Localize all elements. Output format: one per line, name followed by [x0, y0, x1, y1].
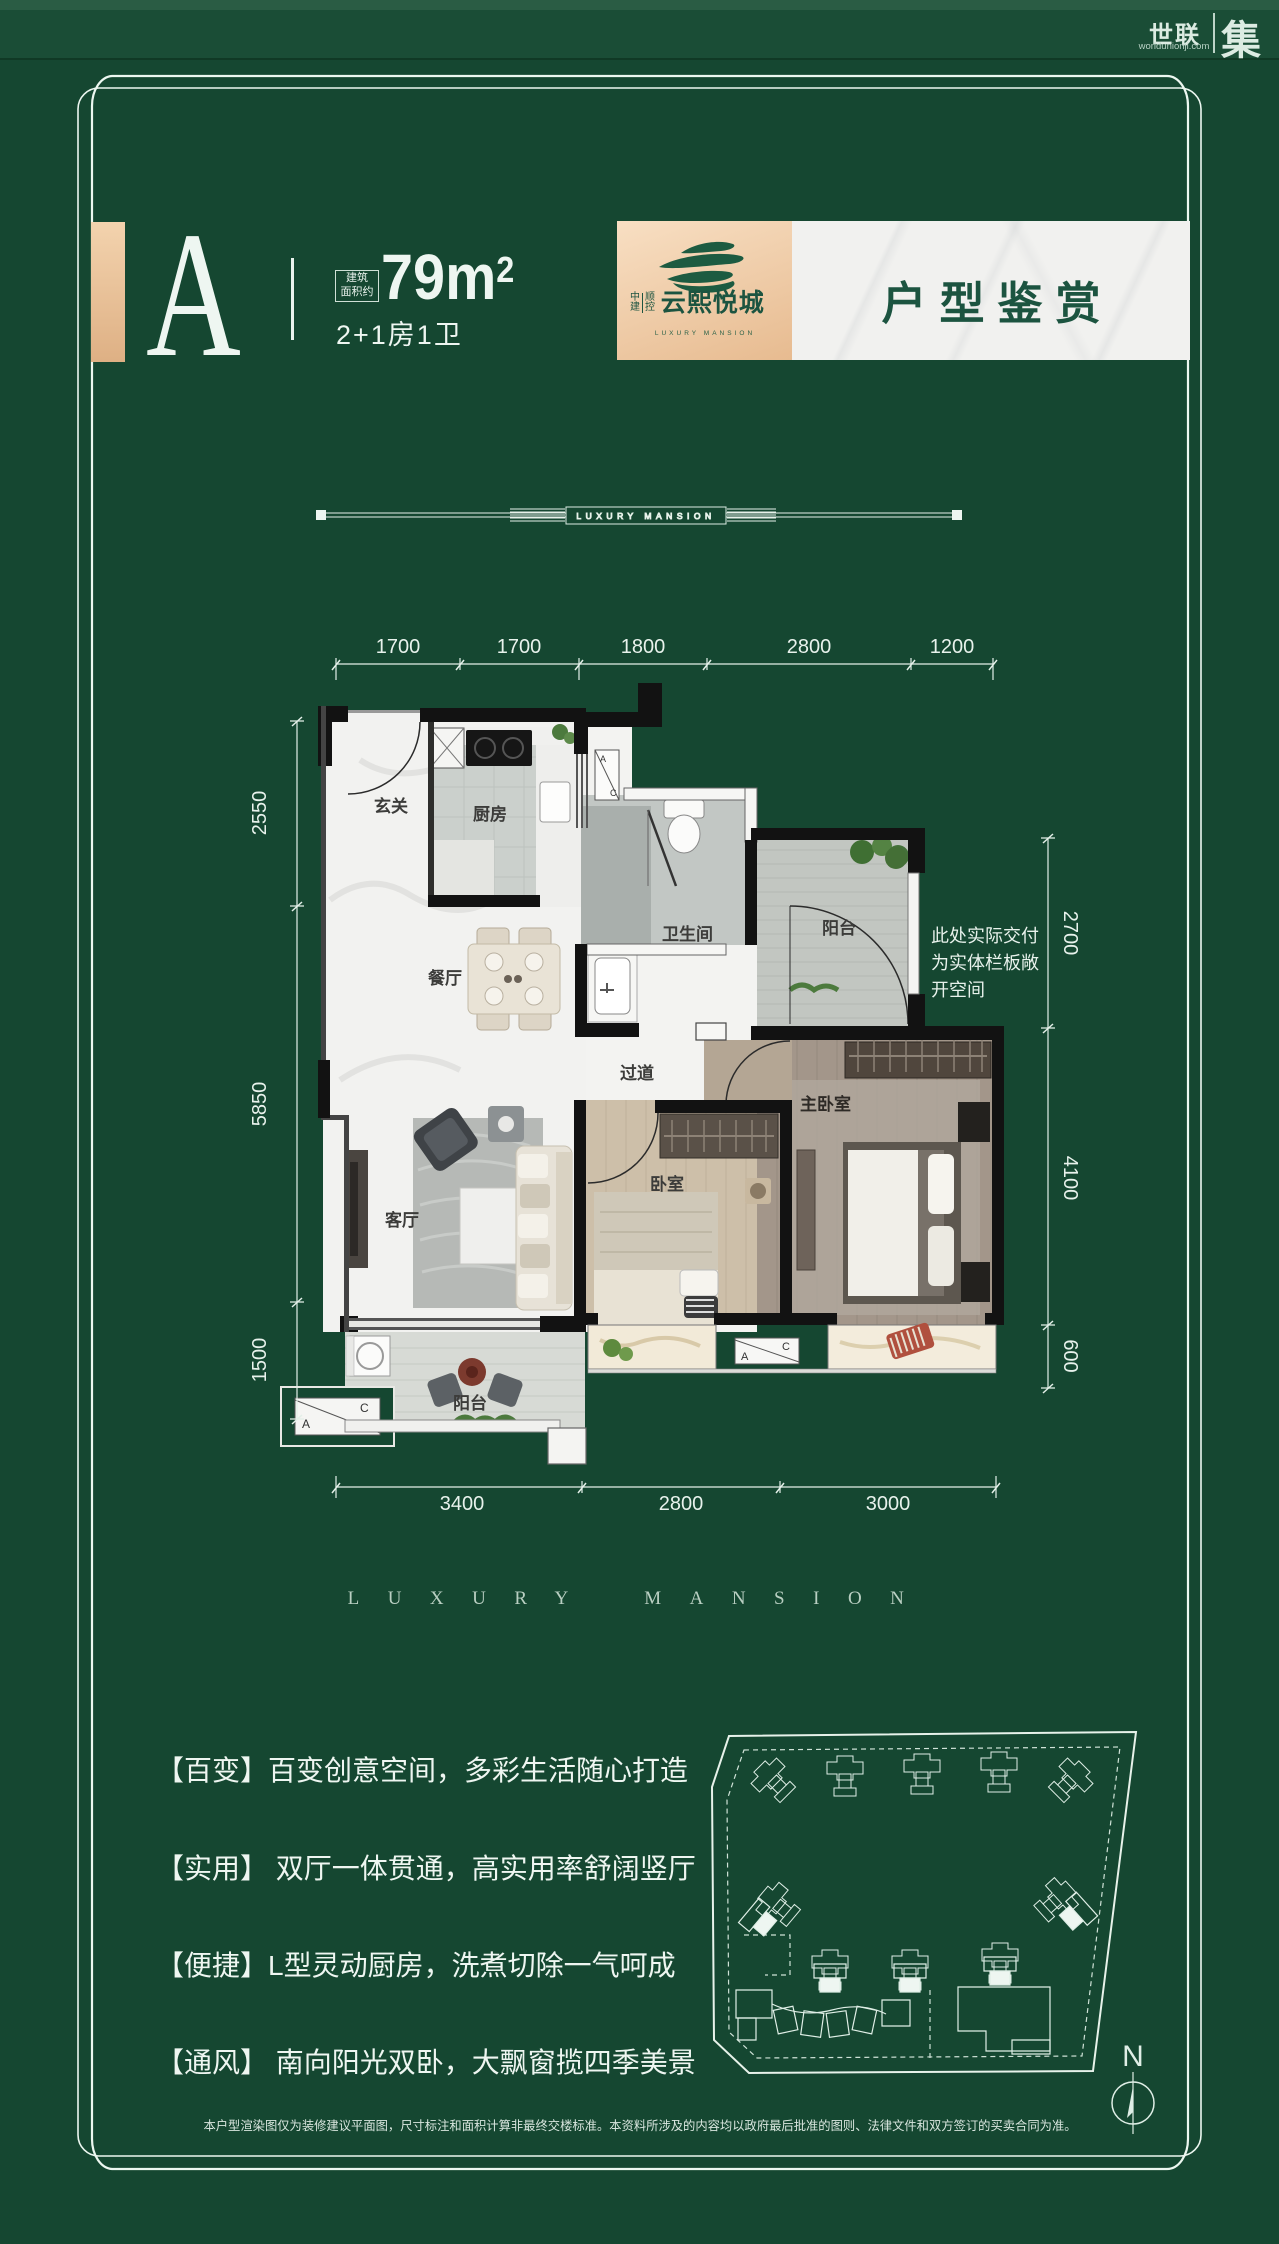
svg-text:3000: 3000 [866, 1493, 911, 1515]
svg-text:A: A [741, 1351, 749, 1363]
svg-text:玄关: 玄关 [374, 796, 408, 816]
svg-text:1500: 1500 [249, 1338, 271, 1383]
svg-text:开空间: 开空间 [931, 980, 985, 1000]
svg-text:C: C [610, 788, 617, 798]
svg-text:1700: 1700 [497, 636, 542, 658]
svg-text:1200: 1200 [930, 636, 975, 658]
svg-text:A: A [600, 754, 606, 764]
svg-text:LUXURY MANSION: LUXURY MANSION [576, 511, 715, 521]
svg-text:4100: 4100 [1059, 1156, 1081, 1201]
svg-text:客厅: 客厅 [384, 1210, 419, 1230]
svg-text:为实体栏板敞: 为实体栏板敞 [931, 953, 1039, 973]
svg-text:此处实际交付: 此处实际交付 [931, 926, 1039, 946]
svg-text:N: N [1122, 2040, 1144, 2073]
svg-text:餐厅: 餐厅 [428, 968, 462, 988]
svg-text:600: 600 [1059, 1339, 1081, 1372]
svg-text:过道: 过道 [620, 1063, 654, 1083]
svg-text:2550: 2550 [249, 791, 271, 836]
svg-text:阳台: 阳台 [822, 918, 856, 938]
svg-text:2800: 2800 [787, 636, 832, 658]
svg-text:卫生间: 卫生间 [662, 924, 713, 944]
svg-text:厨房: 厨房 [473, 804, 507, 824]
svg-text:主卧室: 主卧室 [800, 1094, 851, 1114]
svg-text:2800: 2800 [659, 1493, 704, 1515]
svg-text:1800: 1800 [621, 636, 666, 658]
svg-text:C: C [782, 1341, 790, 1353]
svg-text:卧室: 卧室 [650, 1174, 684, 1194]
svg-text:C: C [360, 1401, 369, 1415]
svg-text:2700: 2700 [1059, 911, 1081, 956]
svg-text:阳台: 阳台 [453, 1393, 487, 1413]
svg-text:3400: 3400 [440, 1493, 485, 1515]
svg-text:1700: 1700 [376, 636, 421, 658]
svg-text:5850: 5850 [249, 1082, 271, 1127]
